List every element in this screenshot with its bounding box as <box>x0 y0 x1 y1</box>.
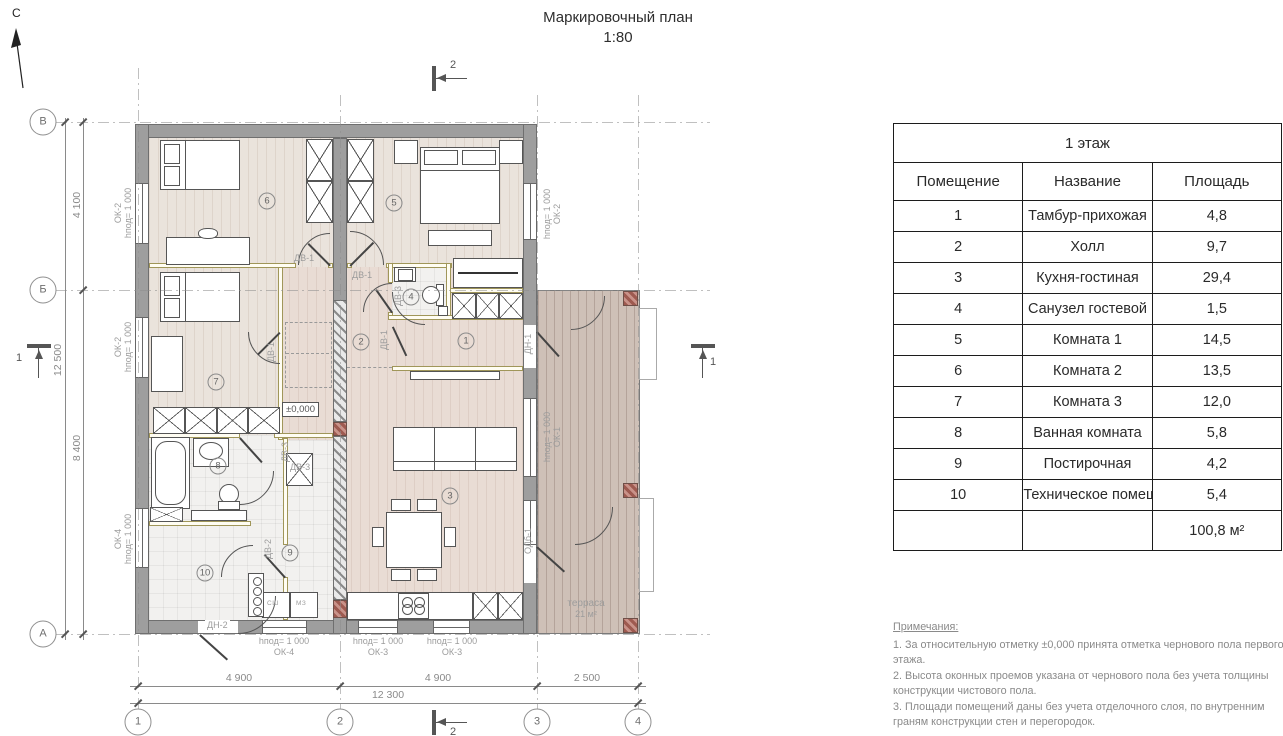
section-mark-1-left <box>27 344 51 348</box>
washer-label: СШ <box>267 600 279 607</box>
north-arrow-icon <box>6 4 46 96</box>
dryer-label: МЗ <box>296 600 306 607</box>
room-number-6: 6 <box>259 193 276 210</box>
table-title: 1 этаж <box>894 124 1282 163</box>
bed-line <box>185 141 186 189</box>
grid-axis-A <box>35 634 710 635</box>
door-label-dv3: ДВ-3 <box>280 442 290 462</box>
terrace-step <box>639 498 654 592</box>
sink-basin <box>398 269 413 281</box>
section-number: 2 <box>450 726 456 736</box>
section-number: 1 <box>710 356 716 368</box>
table-row: 7Комната 312,0 <box>894 387 1282 418</box>
grid-axis-2 <box>340 95 341 710</box>
table-row: 4Санузел гостевой1,5 <box>894 294 1282 325</box>
section-mark-2-top <box>432 66 436 91</box>
table-row: 5Комната 114,5 <box>894 325 1282 356</box>
note-item: 1. За относительную отметку ±0,000 приня… <box>893 638 1283 669</box>
drawing-title-text: Маркировочный план <box>527 8 709 28</box>
col-header-room: Помещение <box>894 163 1023 201</box>
marking-plan-sheet: С Маркировочный план 1:80 терраса 21 м² <box>0 0 1283 736</box>
window-label-ok4: ОК-4 hпод= 1 000 <box>113 514 133 564</box>
chair <box>372 527 384 547</box>
window-label-ok3: hпод= 1 000 ОК-3 <box>353 636 403 658</box>
bed-pillow <box>164 276 180 296</box>
window-ok3-bottom <box>433 620 470 634</box>
bed-pillow <box>462 150 496 165</box>
col-header-area: Площадь <box>1152 163 1281 201</box>
section-number: 1 <box>16 352 22 364</box>
bath-cabinet <box>150 507 183 522</box>
sofa <box>393 427 517 471</box>
room-number-4: 4 <box>403 289 420 306</box>
entry-bench <box>410 371 500 380</box>
room-number-8: 8 <box>210 458 227 475</box>
axis-bubble-3: 3 <box>524 709 551 736</box>
nightstand <box>499 140 523 164</box>
north-arrow: С <box>6 4 46 96</box>
level-mark: ±0,000 <box>282 402 319 417</box>
table-row: 2Холл9,7 <box>894 232 1282 263</box>
wall-top <box>135 124 537 138</box>
window-label-ok2: ОК-2 hпод= 1 000 <box>113 322 133 372</box>
terrace-area: 21 м² <box>567 609 604 620</box>
grid-axis-Bb <box>35 290 710 291</box>
door-label-dn2: ДН-2 <box>205 620 230 630</box>
room-number-10: 10 <box>197 565 214 582</box>
chair <box>417 569 437 581</box>
dining-table <box>386 512 442 568</box>
window-ok3-bottom <box>358 620 398 634</box>
axis-bubble-B: Б <box>30 277 57 304</box>
floor-drain <box>438 306 448 316</box>
chair <box>391 499 411 511</box>
window-ok2-room5 <box>523 183 537 240</box>
corridor-wardrobe-outline <box>285 322 332 388</box>
window-label-ok1: hпод= 1 000 ОК-1 <box>542 412 562 462</box>
desk-line <box>458 272 518 274</box>
bed-line <box>185 273 186 321</box>
vanity <box>191 510 247 521</box>
bed-pillow <box>164 144 180 164</box>
table-row: 10Техническое помещение5,4 <box>894 480 1282 511</box>
section-arrow <box>699 350 707 359</box>
dim-line <box>130 686 646 687</box>
door-label-dv1: ДВ-1 <box>352 270 372 280</box>
window-label-odb1: ОДб-1 <box>523 528 533 554</box>
room-schedule-table: 1 этаж Помещение Название Площадь 1Тамбу… <box>893 123 1282 551</box>
door-label-dv2: ДВ-2 <box>263 539 273 559</box>
bathtub <box>151 437 190 509</box>
table-row: 6Комната 213,5 <box>894 356 1282 387</box>
grid-axis-1 <box>138 68 139 710</box>
partition <box>388 263 393 283</box>
table-total-row: 100,8 м² <box>894 511 1282 551</box>
drawing-scale: 1:80 <box>527 28 709 48</box>
dim-span-3: 2 500 <box>574 673 600 684</box>
section-mark-2-bottom <box>432 710 436 735</box>
room-number-3: 3 <box>442 488 459 505</box>
desk <box>166 237 250 265</box>
chair <box>417 499 437 511</box>
window-ok1-living <box>523 398 537 477</box>
kitchen-cabinet <box>473 592 523 620</box>
wardrobe <box>347 139 374 223</box>
room-number-2: 2 <box>353 334 370 351</box>
section-arrow <box>437 74 446 82</box>
terrace-label: терраса 21 м² <box>567 598 604 620</box>
bed-pillow <box>164 166 180 186</box>
dim-line <box>130 703 646 704</box>
window-label-ok4: hпод= 1 000 ОК-4 <box>259 636 309 658</box>
note-item: 2. Высота оконных проемов указана от чер… <box>893 669 1283 700</box>
window-label-ok3: hпод= 1 000 ОК-3 <box>427 636 477 658</box>
nightstand <box>394 140 418 164</box>
desk <box>151 336 183 392</box>
dim-overall: 12 300 <box>372 690 404 701</box>
stove <box>398 593 429 619</box>
wardrobe <box>306 139 333 223</box>
room-number-9: 9 <box>282 545 299 562</box>
dim-span-2: 4 900 <box>425 673 451 684</box>
dim-span-1: 4 900 <box>226 673 252 684</box>
bed-bench <box>428 230 492 246</box>
table-row: 3Кухня-гостиная29,4 <box>894 263 1282 294</box>
axis-bubble-1: 1 <box>125 709 152 736</box>
bed-pillow <box>164 298 180 318</box>
terrace-post <box>623 483 638 498</box>
axis-bubble-4: 4 <box>625 709 652 736</box>
notes-block: Примечания: 1. За относительную отметку … <box>893 620 1283 731</box>
section-number: 2 <box>450 59 456 71</box>
grid-axis-4 <box>638 95 639 710</box>
section-arrow <box>35 350 43 359</box>
chair <box>391 569 411 581</box>
axis-bubble-A: А <box>30 621 57 648</box>
grid-axis-B <box>35 122 710 123</box>
notes-heading: Примечания: <box>893 620 1283 636</box>
door-label-dv1: ДВ-1 <box>379 330 389 350</box>
room-number-7: 7 <box>208 374 225 391</box>
door-leaf <box>199 634 228 660</box>
axis-bubble-2: 2 <box>327 709 354 736</box>
total-area: 100,8 м² <box>1152 511 1281 551</box>
section-mark-1-right <box>691 344 715 348</box>
table-row: 1Тамбур-прихожая4,8 <box>894 201 1282 232</box>
dim-left-top: 4 100 <box>72 192 82 218</box>
note-item: 3. Площади помещений даны без учета отде… <box>893 700 1283 731</box>
window-ok4-bottom <box>262 620 307 634</box>
dim-left-overall: 12 500 <box>53 344 63 376</box>
door-label-dv3: ДВ-3 <box>393 286 403 306</box>
section-arrow <box>437 718 446 726</box>
bed-pillow <box>424 150 458 165</box>
window-label-ok2: hпод= 1 000 ОК-2 <box>542 189 562 239</box>
window-label-ok2: ОК-2 hпод= 1 000 <box>113 188 133 238</box>
door-label-dv1: ДВ-1 <box>294 253 314 263</box>
col-header-name: Название <box>1023 163 1152 201</box>
room-number-5: 5 <box>386 195 403 212</box>
door-label-dv3: ДВ-3 <box>290 462 310 472</box>
wardrobe <box>153 407 280 434</box>
desk-chair <box>198 228 218 239</box>
door-label-dn1: ДН-1 <box>523 334 533 355</box>
entry-closet <box>452 293 523 319</box>
toilet <box>216 484 242 510</box>
toilet <box>422 283 444 305</box>
terrace-post <box>623 618 638 633</box>
table-row: 8Ванная комната5,8 <box>894 418 1282 449</box>
corridor-wardrobe-divider <box>286 353 329 354</box>
dim-line <box>83 118 84 640</box>
axis-bubble-V: В <box>30 109 57 136</box>
chair <box>444 527 456 547</box>
dim-left-bottom: 8 400 <box>72 435 82 461</box>
door-label-dv1: ДВ-1 <box>266 342 276 362</box>
terrace-name: терраса <box>567 598 604 609</box>
zone-boundary <box>347 367 392 368</box>
room-number-1: 1 <box>458 333 475 350</box>
table-row: 9Постирочная4,2 <box>894 449 1282 480</box>
terrace-post <box>623 291 638 306</box>
dim-line <box>65 118 66 640</box>
drawing-title: Маркировочный план 1:80 <box>527 8 709 48</box>
terrace-step <box>639 308 657 380</box>
grid-axis-3 <box>537 95 538 710</box>
bed-line <box>421 170 499 171</box>
